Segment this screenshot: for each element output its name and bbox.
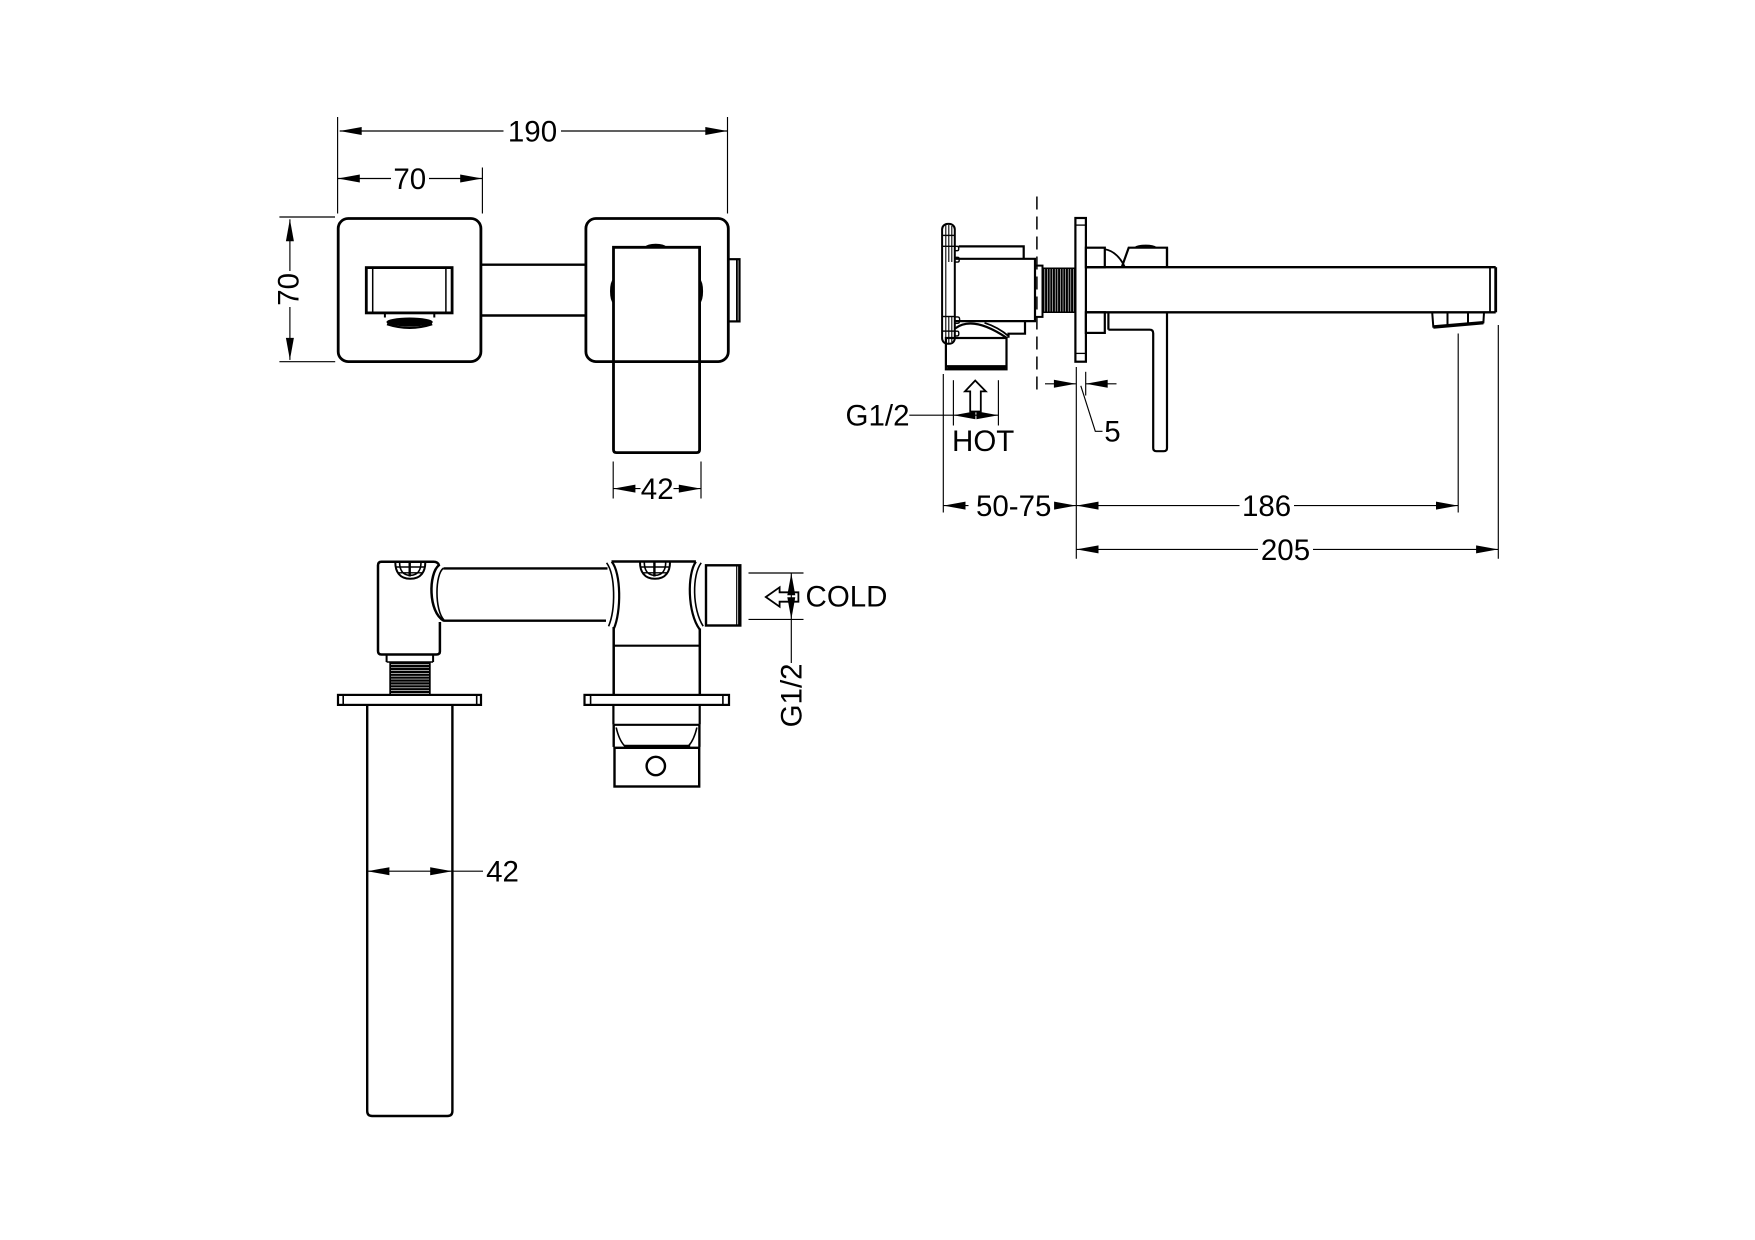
- svg-text:G1/2: G1/2: [846, 400, 910, 433]
- svg-text:G1/2: G1/2: [775, 663, 808, 727]
- svg-text:70: 70: [393, 163, 426, 196]
- svg-text:205: 205: [1261, 534, 1310, 567]
- svg-text:COLD: COLD: [806, 581, 888, 614]
- svg-text:190: 190: [508, 116, 557, 149]
- svg-text:HOT: HOT: [952, 425, 1014, 458]
- svg-text:5: 5: [1104, 416, 1120, 449]
- svg-text:42: 42: [486, 856, 519, 889]
- svg-text:42: 42: [641, 473, 674, 506]
- svg-text:70: 70: [273, 273, 306, 306]
- svg-text:186: 186: [1242, 490, 1291, 523]
- svg-text:50-75: 50-75: [976, 490, 1051, 523]
